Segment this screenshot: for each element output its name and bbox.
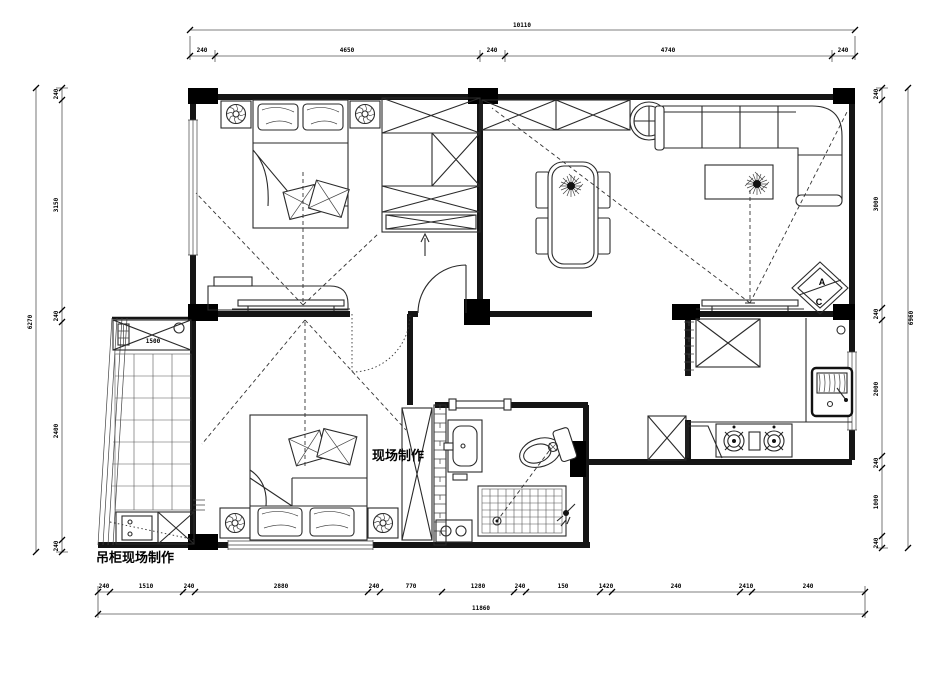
guide-line bbox=[110, 522, 196, 540]
toilet bbox=[515, 427, 577, 474]
balcony: 1500 吊柜现场制作 bbox=[96, 318, 205, 565]
nightstand bbox=[220, 508, 250, 538]
dim-label: 240 bbox=[197, 47, 208, 54]
corner-cabinet bbox=[688, 426, 722, 458]
dim-label: 2000 bbox=[873, 381, 880, 396]
dim-label: 240 bbox=[873, 537, 880, 548]
dim-label: 240 bbox=[369, 583, 380, 590]
balcony-cabinet: 1500 bbox=[113, 320, 191, 350]
dim-label: 3000 bbox=[873, 196, 880, 211]
dim-top-total: 10110 bbox=[513, 22, 531, 29]
hanging-cabinet bbox=[158, 512, 194, 544]
dim-balcony-cabinet: 1500 bbox=[146, 338, 161, 345]
dim-label: 2880 bbox=[274, 583, 289, 590]
dim-label: 240 bbox=[515, 583, 526, 590]
bedroom-2 bbox=[202, 314, 410, 540]
kitchen-sink bbox=[812, 368, 852, 416]
floor-plan-drawing: 10110 240 4650 240 4740 240 11860 240 15… bbox=[0, 0, 928, 679]
dim-label: 150 bbox=[558, 583, 569, 590]
tv-icon bbox=[238, 300, 344, 306]
nightstand bbox=[368, 508, 398, 538]
mop-pool bbox=[436, 520, 472, 542]
dim-right-total: 6960 bbox=[908, 310, 915, 325]
pillow bbox=[310, 508, 354, 536]
pillow bbox=[258, 508, 302, 536]
chair bbox=[597, 172, 610, 208]
sofa-armrest bbox=[796, 195, 842, 206]
door-bedroom1 bbox=[418, 265, 466, 313]
section-marker-letter: A bbox=[819, 277, 826, 287]
dim-label: 1420 bbox=[599, 583, 614, 590]
dim-label: 240 bbox=[487, 47, 498, 54]
dim-label: 240 bbox=[838, 47, 849, 54]
direction-arrow-icon bbox=[421, 234, 429, 256]
counter-hole bbox=[837, 326, 845, 334]
washing-machine bbox=[116, 512, 158, 544]
kitchen bbox=[684, 318, 852, 458]
faucet-icon bbox=[444, 443, 453, 450]
dim-left-total: 6270 bbox=[27, 314, 34, 329]
dimension-bottom: 11860 240 1510 240 2880 240 770 1280 240… bbox=[95, 583, 868, 618]
dim-label: 240 bbox=[53, 310, 60, 321]
dim-label: 1280 bbox=[471, 583, 486, 590]
pillow bbox=[258, 104, 298, 130]
onsite-cabinet bbox=[402, 408, 432, 540]
hall-cabinet bbox=[648, 416, 686, 460]
column bbox=[833, 88, 855, 104]
vanity-sink bbox=[444, 420, 482, 480]
column bbox=[188, 88, 218, 104]
dim-label: 3150 bbox=[53, 197, 60, 212]
hanging-cabinet-label: 吊柜现场制作 bbox=[96, 550, 174, 565]
balcony-glazing bbox=[98, 318, 127, 545]
burner-icon bbox=[764, 431, 784, 451]
column bbox=[464, 299, 490, 325]
dim-label: 240 bbox=[184, 583, 195, 590]
bathroom: 现场制作 bbox=[372, 399, 577, 545]
dim-label: 240 bbox=[671, 583, 682, 590]
burner-icon bbox=[724, 431, 744, 451]
dimension-left: 6270 240 3150 240 2400 240 bbox=[27, 85, 68, 555]
chair bbox=[536, 172, 549, 208]
floor-plan-sheet: 10110 240 4650 240 4740 240 11860 240 15… bbox=[0, 0, 928, 679]
dim-label: 240 bbox=[873, 457, 880, 468]
dim-label: 2410 bbox=[739, 583, 754, 590]
dim-label: 240 bbox=[53, 540, 60, 551]
pillow bbox=[303, 104, 343, 130]
living-dining: A C bbox=[482, 100, 848, 314]
coffee-table bbox=[705, 165, 773, 199]
tv-cabinet bbox=[208, 277, 350, 311]
column bbox=[833, 304, 855, 320]
dim-label: 240 bbox=[99, 583, 110, 590]
door-bedroom2 bbox=[352, 314, 410, 372]
dim-label: 1000 bbox=[873, 494, 880, 509]
dim-bottom-total: 11860 bbox=[472, 605, 490, 612]
refrigerator bbox=[696, 319, 760, 367]
dim-label: 2400 bbox=[53, 423, 60, 438]
dim-label: 240 bbox=[873, 88, 880, 99]
onsite-fabrication-label: 现场制作 bbox=[372, 448, 424, 463]
media-shelf bbox=[214, 277, 252, 286]
column bbox=[468, 88, 498, 104]
dimension-top: 10110 240 4650 240 4740 240 bbox=[187, 22, 858, 62]
column bbox=[672, 304, 700, 320]
chair bbox=[536, 218, 549, 254]
gas-stove bbox=[716, 424, 792, 457]
plant-icon bbox=[745, 172, 769, 195]
double-bed bbox=[250, 415, 367, 540]
double-bed bbox=[253, 100, 349, 228]
dim-label: 770 bbox=[406, 583, 417, 590]
column bbox=[188, 304, 218, 321]
dim-label: 240 bbox=[803, 583, 814, 590]
dining-set bbox=[536, 162, 610, 268]
sofa-armrest bbox=[655, 106, 664, 150]
shower-area bbox=[478, 486, 566, 536]
dimension-right: 6960 240 3000 240 2000 240 1000 240 bbox=[873, 85, 915, 551]
pocket-door bbox=[449, 399, 511, 410]
dim-label: 1510 bbox=[139, 583, 154, 590]
sectional-sofa bbox=[655, 106, 842, 206]
dim-label: 4740 bbox=[661, 47, 676, 54]
tv-wall bbox=[696, 300, 804, 311]
bedroom-1 bbox=[196, 98, 480, 313]
wardrobe bbox=[382, 98, 480, 232]
dim-label: 240 bbox=[873, 308, 880, 319]
dim-label: 240 bbox=[53, 88, 60, 99]
shoe-cabinet bbox=[482, 100, 630, 130]
chair bbox=[597, 218, 610, 254]
dim-label: 4650 bbox=[340, 47, 355, 54]
section-marker-letter: C bbox=[816, 297, 823, 307]
